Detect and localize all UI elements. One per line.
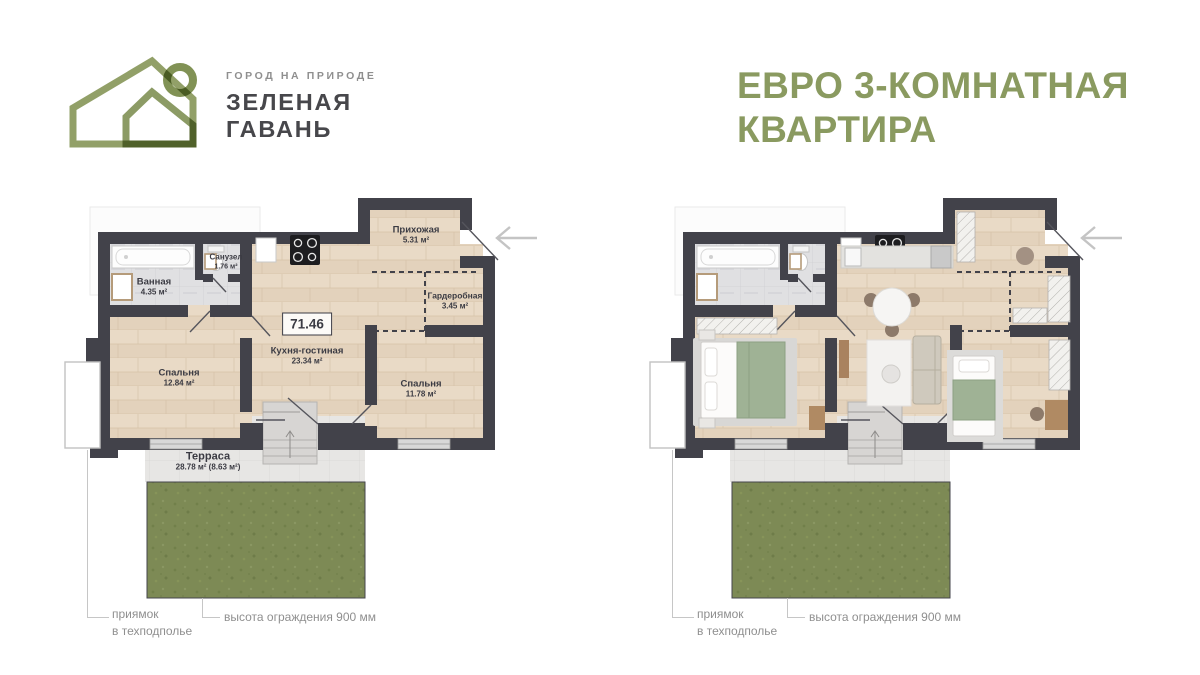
floor-plan-drawing-furnished bbox=[645, 190, 1125, 610]
fence-annotation: высота ограждения 900 мм bbox=[224, 609, 376, 626]
entrance-arrow-icon bbox=[497, 227, 537, 249]
pit-annotation: приямок в техподполье bbox=[697, 606, 777, 640]
leader-line bbox=[787, 598, 788, 618]
leader-line bbox=[672, 617, 694, 618]
brand-name-line1: ЗЕЛЕНАЯ bbox=[226, 89, 376, 116]
terrace-stairs bbox=[263, 402, 317, 464]
leader-line bbox=[202, 617, 220, 618]
floor-plan-furnished bbox=[645, 190, 1125, 610]
pit-outline bbox=[65, 362, 100, 448]
terrace-floor bbox=[145, 450, 365, 482]
terrace-grass bbox=[147, 482, 365, 598]
fence-annotation: высота ограждения 900 мм bbox=[809, 609, 961, 626]
floor-plan-drawing bbox=[60, 190, 540, 610]
total-area-badge: 71.46 bbox=[282, 313, 332, 336]
hallway-floor bbox=[370, 210, 460, 272]
leader-line bbox=[87, 617, 109, 618]
leader-line bbox=[787, 617, 805, 618]
page-title-line1: ЕВРО 3-КОМНАТНАЯ bbox=[737, 64, 1129, 108]
leader-line bbox=[87, 450, 88, 617]
page-title-line2: КВАРТИРА bbox=[737, 108, 1129, 152]
brand-tagline: ГОРОД НА ПРИРОДЕ bbox=[226, 70, 376, 82]
brand-logo-icon bbox=[63, 45, 203, 163]
leader-line bbox=[202, 598, 203, 618]
brand-name-line2: ГАВАНЬ bbox=[226, 116, 376, 143]
page-title: ЕВРО 3-КОМНАТНАЯ КВАРТИРА bbox=[737, 64, 1129, 152]
page: { "brand": { "tagline": "ГОРОД НА ПРИРОД… bbox=[0, 0, 1200, 675]
brand-name: ЗЕЛЕНАЯ ГАВАНЬ bbox=[226, 89, 376, 143]
floor-plan-schematic: Ванная 4.35 м² Санузел 1.76 м² Прихожая … bbox=[60, 190, 540, 610]
leader-line bbox=[672, 450, 673, 617]
brand-text-block: ГОРОД НА ПРИРОДЕ ЗЕЛЕНАЯ ГАВАНЬ bbox=[226, 70, 376, 143]
pit-annotation: приямок в техподполье bbox=[112, 606, 192, 640]
